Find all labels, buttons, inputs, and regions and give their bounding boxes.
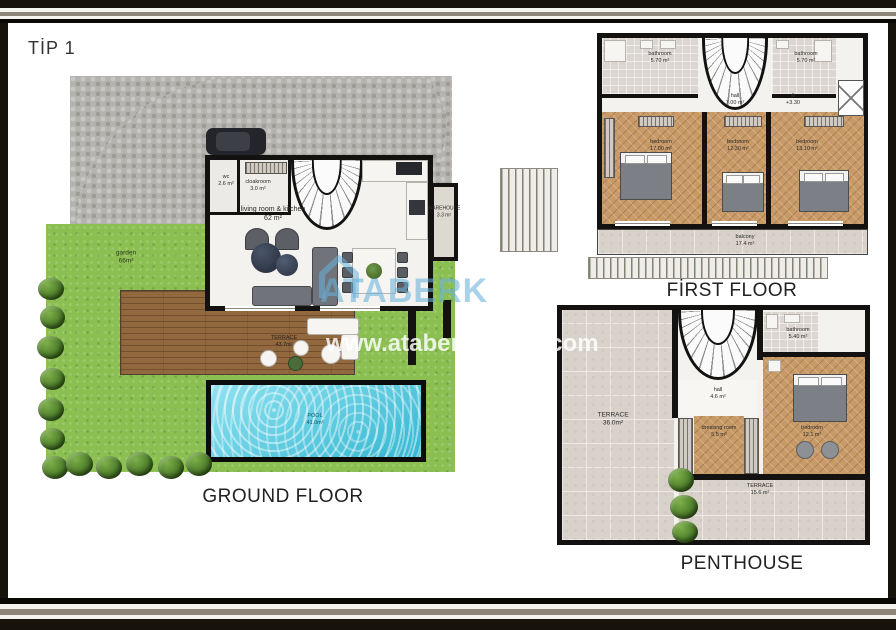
interior-wall [602, 94, 698, 98]
room-label-bathroom-right: bathroom 5.70 m² [794, 51, 817, 65]
room-label-warehouse: WAREHOUSE 3.3 m² [428, 206, 461, 219]
frame-right-border [888, 23, 896, 598]
interior-wall [672, 310, 678, 418]
frame-left-border [0, 23, 8, 598]
room-label-cloakroom: cloakroom 3.0 m² [245, 179, 270, 193]
watermark-brand: ATABERK [320, 272, 488, 311]
bush [96, 456, 122, 479]
cloakroom-wardrobe [245, 162, 287, 174]
pergola [588, 257, 828, 279]
sink [660, 40, 676, 49]
room-label-wc: wc 2.6 m² [218, 174, 234, 188]
wardrobe [724, 116, 762, 127]
outdoor-stool [260, 350, 277, 367]
bed [722, 172, 764, 212]
room-label-dressing: dressing room 5.5 m² [702, 425, 737, 439]
room-label-bedroom-left: bedroom 17.00 m² [650, 139, 672, 153]
pouf [796, 441, 814, 459]
pouf [821, 441, 839, 459]
room-label-balcony: balcony 17.4 m² [736, 234, 755, 248]
dressing-wardrobe [678, 418, 693, 474]
interior-wall [676, 474, 866, 480]
room-label-garden: garden 66m² [116, 250, 136, 267]
interior-wall [766, 112, 771, 224]
bed [799, 170, 849, 212]
bush [66, 452, 93, 476]
bush [126, 452, 153, 476]
floor-plan-sheet: TİP 1 [0, 0, 896, 630]
room-label-pool: POOL 41.0m² [306, 413, 323, 427]
cooktop [396, 162, 422, 175]
caption-penthouse: PENTHOUSE [681, 553, 804, 575]
balcony [597, 229, 868, 255]
armchair [275, 228, 299, 250]
room-label-hall-first: hall 7.00 m² [726, 93, 745, 107]
stair-well [721, 38, 749, 74]
bush [40, 306, 65, 329]
stair-well [701, 310, 735, 345]
room-label-terrace-small: TERRACE 15.6 m² [747, 483, 773, 497]
outdoor-pouf [288, 356, 303, 371]
room-label-living: living room & kitchen 62 m² [241, 205, 306, 223]
wardrobe [804, 116, 844, 127]
sofa [252, 286, 312, 306]
room-label-bathroom-left: bathroom 5.70 m² [648, 51, 671, 65]
bush [42, 456, 68, 479]
interior-wall [772, 94, 836, 98]
window [788, 221, 843, 226]
watermark-url: www.ataberkestate.com [326, 330, 599, 358]
room-label-terrace-main: TERRACE 36.0m² [597, 412, 628, 429]
bush [670, 495, 698, 519]
toilet [640, 40, 653, 49]
room-label-bedroom-mid: bedroom 12.30 m² [727, 139, 749, 153]
nightstand [768, 360, 781, 372]
bed [793, 374, 847, 422]
coffee-table [276, 254, 298, 276]
bush [186, 452, 212, 476]
stair-well [312, 160, 342, 195]
car-roof [216, 132, 250, 151]
bush [40, 428, 65, 450]
pergola [500, 168, 558, 252]
sheet-title: TİP 1 [28, 38, 76, 59]
room-label-penthouse-bathroom: bathroom 5.40 m² [786, 327, 809, 341]
shower [604, 40, 626, 62]
bush [668, 468, 694, 492]
sink [784, 314, 800, 323]
frame-bottom-border [0, 598, 896, 630]
wardrobe [604, 118, 615, 178]
window [712, 221, 757, 226]
toilet [776, 40, 789, 49]
wardrobe [638, 116, 674, 127]
interior-wall [702, 112, 707, 224]
shaft [838, 80, 864, 116]
interior-wall [763, 352, 865, 357]
dining-chair [397, 252, 408, 263]
frame-top-border [0, 0, 896, 23]
bush [672, 521, 698, 543]
room-label-bedroom-right: bedroom 13.10 m² [796, 139, 818, 153]
caption-first-floor: FİRST FLOOR [667, 280, 798, 302]
level-icon: ⊕ [786, 93, 800, 100]
caption-ground-floor: GROUND FLOOR [202, 486, 363, 508]
room-label-terrace: TERRACE 43.7m² [271, 335, 297, 349]
bush [158, 456, 184, 479]
window [615, 221, 670, 226]
room-label-penthouse-bedroom: bedroom 12.1 m² [801, 425, 823, 439]
bush [38, 278, 64, 300]
bush [38, 398, 64, 421]
level-mark: ⊕ +3.30 [786, 93, 800, 107]
room-label-penthouse-hall: hall 4.6 m² [710, 387, 726, 401]
warehouse-room [430, 183, 458, 261]
bush [37, 336, 64, 359]
toilet [766, 314, 778, 329]
window [225, 306, 295, 311]
kitchen-appliance [409, 200, 425, 215]
dressing-wardrobe [744, 418, 759, 474]
bed [620, 152, 672, 200]
bush [40, 368, 65, 390]
